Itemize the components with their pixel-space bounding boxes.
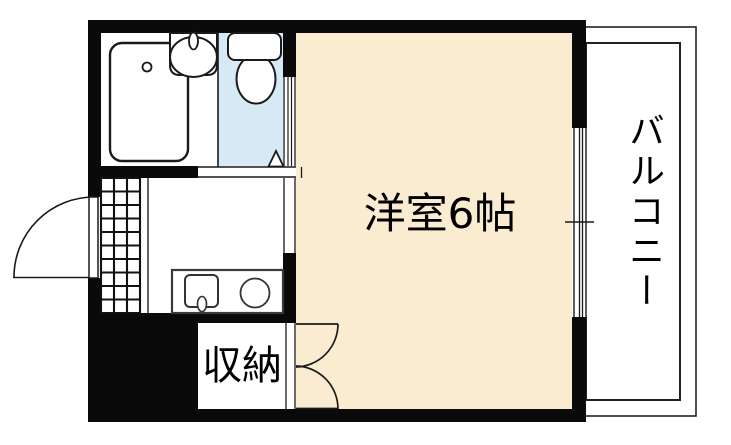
room-doorway-opening: [283, 178, 296, 253]
entrance-door-swing-arc: [14, 197, 94, 277]
partition-window-opening: [283, 77, 296, 167]
entrance-door-leaf: [89, 197, 98, 278]
kitchen-faucet: [198, 297, 207, 312]
wall-right-lower: [572, 317, 586, 410]
balcony-label: バルコニー: [617, 112, 669, 312]
kitchen-burner: [241, 279, 270, 308]
floor-plan: 洋室6帖 収納 バルコニー: [0, 0, 731, 445]
bathtub-drain: [143, 63, 152, 72]
toilet-bowl: [237, 55, 276, 104]
bath-doorway-opening: [198, 166, 296, 178]
wall-bath-bottom: [101, 166, 198, 178]
wall-mid-lower: [283, 253, 296, 315]
wall-top: [88, 20, 586, 33]
wall-left-upper: [88, 20, 101, 197]
main-room-label: 洋室6帖: [358, 191, 522, 237]
washbasin-faucet: [189, 33, 198, 50]
entrance-tile-floor: [101, 178, 140, 313]
wall-mid-upper: [283, 20, 296, 77]
wall-right-upper: [572, 33, 586, 128]
toilet-tank: [228, 33, 281, 60]
closet-label: 収納: [196, 344, 288, 388]
